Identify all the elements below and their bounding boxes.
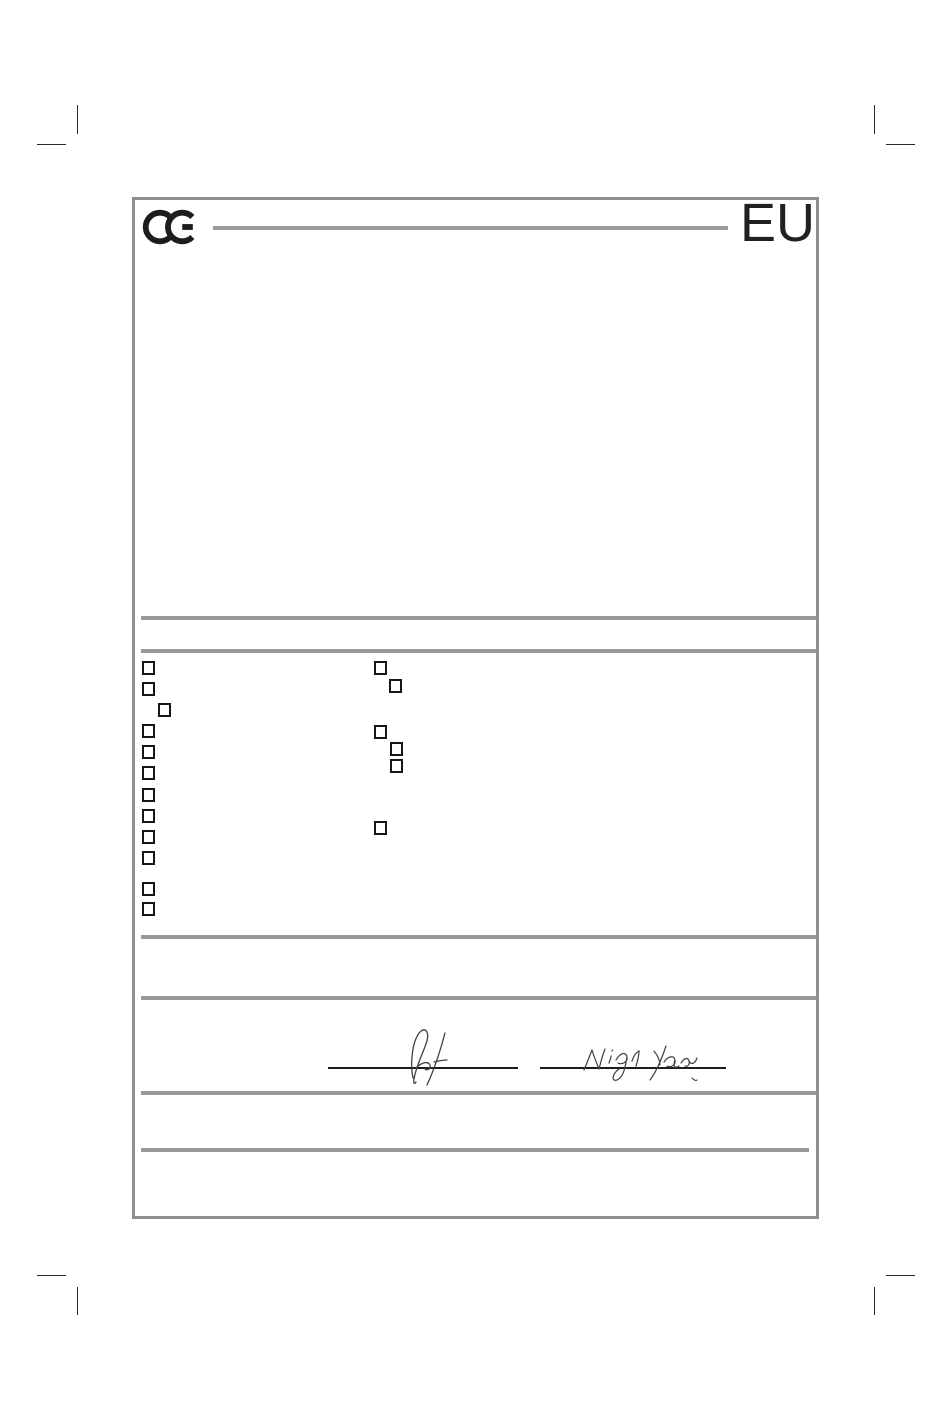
- crop-mark-top-right-v: [874, 105, 875, 134]
- checkbox[interactable]: [142, 902, 155, 916]
- checkbox-indented[interactable]: [389, 679, 402, 693]
- checkbox[interactable]: [142, 851, 155, 865]
- signature-1-handwriting: [400, 1026, 462, 1088]
- checkbox[interactable]: [142, 882, 155, 896]
- checkbox[interactable]: [142, 724, 155, 738]
- eu-label: EU: [740, 196, 814, 252]
- checkbox[interactable]: [142, 745, 155, 759]
- checkbox[interactable]: [142, 788, 155, 802]
- checkbox[interactable]: [374, 821, 387, 835]
- checkbox-indented[interactable]: [390, 759, 403, 773]
- checkbox[interactable]: [374, 725, 387, 739]
- section-divider-6: [141, 1148, 809, 1152]
- crop-mark-top-left-v: [77, 105, 78, 134]
- section-divider-1: [141, 616, 817, 620]
- document-page: EU: [0, 0, 950, 1420]
- crop-mark-bottom-right-v: [874, 1287, 875, 1315]
- signature-2-handwriting: [580, 1042, 698, 1086]
- checkbox-indented[interactable]: [390, 742, 403, 756]
- checkbox[interactable]: [142, 809, 155, 823]
- crop-mark-top-right-h: [886, 144, 915, 145]
- ce-mark-icon: [142, 209, 196, 245]
- checkbox[interactable]: [142, 682, 155, 696]
- checkbox[interactable]: [142, 830, 155, 844]
- checkbox[interactable]: [374, 661, 387, 675]
- crop-mark-bottom-left-h: [37, 1275, 66, 1276]
- checkbox-indented[interactable]: [158, 703, 171, 717]
- checkbox[interactable]: [142, 661, 155, 675]
- section-divider-5: [141, 1091, 817, 1095]
- crop-mark-bottom-left-v: [77, 1287, 78, 1315]
- section-divider-3: [141, 935, 817, 939]
- checkbox[interactable]: [142, 766, 155, 780]
- section-divider-4: [141, 996, 817, 1000]
- header-divider-rule: [213, 226, 728, 230]
- document-border-frame: [132, 197, 819, 1219]
- section-divider-2: [141, 649, 817, 653]
- crop-mark-top-left-h: [37, 144, 66, 145]
- crop-mark-bottom-right-h: [886, 1275, 915, 1276]
